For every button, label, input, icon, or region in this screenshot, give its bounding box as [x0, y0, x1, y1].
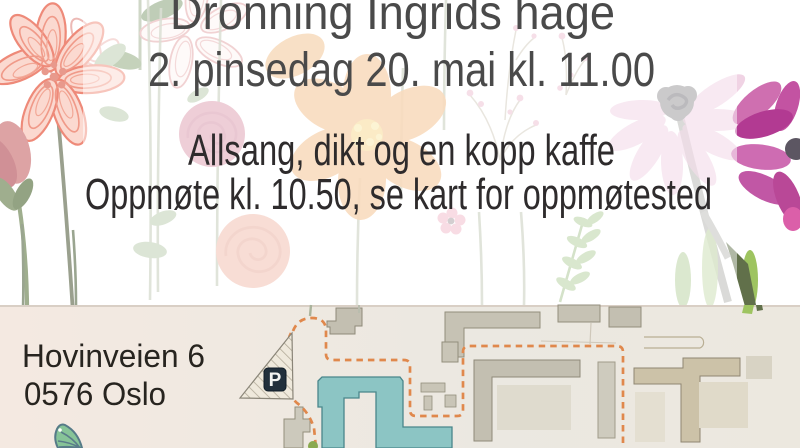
svg-text:2. pinsedag 20. mai kl. 11.00: 2. pinsedag 20. mai kl. 11.00	[148, 44, 655, 97]
svg-text:0576 Oslo: 0576 Oslo	[24, 376, 166, 412]
svg-text:Hovinveien 6: Hovinveien 6	[22, 338, 205, 374]
svg-text:Oppmøte kl. 10.50, se kart for: Oppmøte kl. 10.50, se kart for oppmøtest…	[85, 170, 712, 219]
svg-text:Allsang, dikt og en kopp kaffe: Allsang, dikt og en kopp kaffe	[188, 126, 615, 175]
svg-text:P: P	[269, 370, 282, 391]
svg-text:Dronning Ingrids hage: Dronning Ingrids hage	[170, 0, 615, 40]
